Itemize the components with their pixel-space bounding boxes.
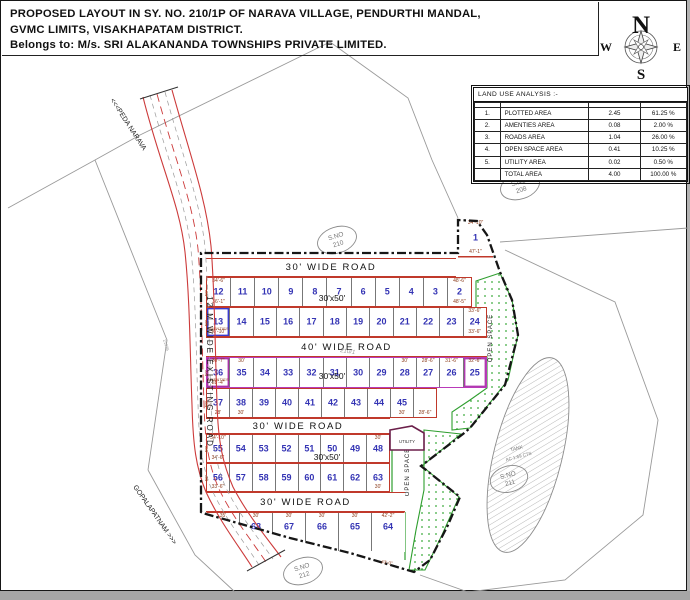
plot-cell: 22 <box>416 308 439 336</box>
plot-cell: 5 <box>375 278 399 306</box>
plot-number: 4 <box>400 287 423 297</box>
plot-number: 12 <box>207 287 230 297</box>
plot-number: 8 <box>303 287 326 297</box>
table-row: 5. UTILITY AREA 0.02 0.50 % <box>475 156 687 168</box>
title-block: PROPOSED LAYOUT IN SY. NO. 210/1P OF NAR… <box>2 2 599 56</box>
plot-cell: 48'-6" 2 48'-5" <box>447 278 471 306</box>
plot-number: 38 <box>230 398 252 408</box>
plot-number: 16 <box>277 317 299 327</box>
plot-number: 37 <box>207 398 229 408</box>
plot-cell: 34'-6" 12 36'-1" 50' <box>207 278 230 306</box>
plot-number: 57 <box>230 472 252 482</box>
plot-cell: 4 <box>399 278 423 306</box>
plot-cell: 30' 66 <box>305 513 338 551</box>
plot-cell: 44 <box>367 389 390 417</box>
table-row: 1. PLOTTED AREA 2.45 61.25 % <box>475 108 687 120</box>
plot-number: 13 <box>207 317 229 327</box>
plot-number: 42 <box>322 398 344 408</box>
plot-cell-1: 34'-10" 1 47'-1" <box>458 220 493 257</box>
plot-row-a2: 13 AMENTIES 36'-10" 50' 14 15 16 17 <box>206 307 487 337</box>
plot-number: 48 <box>367 443 389 453</box>
plot-number: 24 <box>464 317 486 327</box>
plot-cell: 30' 28 <box>393 358 416 387</box>
plot-cell: 30' 65 <box>338 513 371 551</box>
plot-number: 55 <box>207 443 229 453</box>
plot-cell: 59 <box>275 464 298 491</box>
plot-cell: 61 <box>320 464 343 491</box>
table-row: 2. AMENTIES AREA 0.08 2.00 % <box>475 120 687 132</box>
plot-row-d: 35' 69 30' 68 30' 67 30' 66 30' 65 42'-2… <box>206 512 405 552</box>
plot-number: 49 <box>344 443 366 453</box>
plot-cell: 30 <box>346 358 369 387</box>
plot-cell: 9 <box>278 278 302 306</box>
plot-cell: 63 30' <box>366 464 389 491</box>
plot-number: 34 <box>254 367 276 377</box>
plot-cell: 32'-6" 25 <box>463 358 486 387</box>
plot-cell: 32 <box>299 358 322 387</box>
plot-row-c1: 34'-10" 55 34'-6" 50' 54 53 52 51 50 <box>206 434 390 463</box>
plot-cell: 50 <box>320 435 343 462</box>
plot-cell: 35' 69 <box>207 513 239 551</box>
plot-cell: 60 <box>298 464 321 491</box>
plot-cell: 18 <box>323 308 346 336</box>
plot-cell: 34'-10" 55 34'-6" 50' <box>207 435 229 462</box>
land-use-table: LAND USE ANALYSIS :- 1. PLOTTED AREA 2.4… <box>473 87 688 182</box>
plot-number: 54 <box>230 443 252 453</box>
plot-number: 45 <box>391 398 413 408</box>
plot-number: 29 <box>370 367 392 377</box>
window-edge <box>0 591 690 600</box>
plot-number: 10 <box>255 287 278 297</box>
plot-number: 68 <box>240 522 272 532</box>
plot-cell: 54 <box>229 435 252 462</box>
plot-number: 43 <box>345 398 367 408</box>
plot-cell: 21 <box>393 308 416 336</box>
plot-number: 51 <box>299 443 321 453</box>
plot-cell: 31'-6" 26 <box>439 358 462 387</box>
plot-cell: 3 <box>423 278 447 306</box>
plot-number: 31 <box>324 367 346 377</box>
land-use-table-body: 1. PLOTTED AREA 2.45 61.25 % 2. AMENTIES… <box>475 108 687 181</box>
plot-number: 14 <box>230 317 252 327</box>
plot-number: 56 <box>207 472 229 482</box>
title-line-3: Belongs to: M/s. SRI ALAKANANDA TOWNSHIP… <box>10 38 590 54</box>
plot-cell: 7 <box>326 278 350 306</box>
plot-cell: 34 <box>253 358 276 387</box>
table-row: TOTAL AREA 4.00 100.00 % <box>475 168 687 180</box>
plot-cell: 30' 68 <box>239 513 272 551</box>
plot-cell: 45 30' <box>390 389 413 417</box>
plot-cell: 19 <box>346 308 369 336</box>
plot-cell: 53 <box>252 435 275 462</box>
plot-number: 23 <box>440 317 462 327</box>
plot-cell: 41 <box>298 389 321 417</box>
plot-number: 25 <box>464 367 486 377</box>
plot-cell: 11 <box>230 278 254 306</box>
plot-number: 20 <box>370 317 392 327</box>
plot-cell: 52 <box>275 435 298 462</box>
plot-row-c2: 56 33'-6" 50' 57 58 59 60 61 <box>206 463 390 492</box>
plot-number: 65 <box>339 522 371 532</box>
plot-number: 63 <box>367 472 389 482</box>
road-band-2: 40' WIDE ROAD <box>206 337 487 357</box>
plot-cell: 30' 67 <box>272 513 305 551</box>
plot-cell: 8 <box>302 278 326 306</box>
plot-cell: 42 <box>321 389 344 417</box>
plot-number: 64 <box>372 522 404 532</box>
plot-number: 41 <box>299 398 321 408</box>
plot-number: 61 <box>321 472 343 482</box>
plot-number: 19 <box>347 317 369 327</box>
plot-number: 39 <box>253 398 275 408</box>
plot-number: 32 <box>300 367 322 377</box>
road-band-4: 30' WIDE ROAD <box>206 492 405 512</box>
plot-cell: 23 <box>439 308 462 336</box>
plot-number: 27 <box>417 367 439 377</box>
layout-drawing-page: OPEN SPACE OPEN SPACE TANK AC 1.69 CTS S… <box>0 0 690 600</box>
plot-number: 18 <box>324 317 346 327</box>
plot-cell: 58 <box>252 464 275 491</box>
road-label: 30' WIDE ROAD <box>260 497 351 508</box>
plot-cell: 33'-6" 24 33'-6" <box>463 308 486 336</box>
plot-number: 2 <box>448 287 471 297</box>
plot-number: 21 <box>394 317 416 327</box>
plot-number: 35 <box>230 367 252 377</box>
plot-number: 6 <box>352 287 375 297</box>
plot-cell: 37 28' 50' <box>207 389 229 417</box>
plot-cell: 31 <box>323 358 346 387</box>
plot-cell: 33 <box>276 358 299 387</box>
plot-cell: 39 <box>252 389 275 417</box>
plot-cell: 57 <box>229 464 252 491</box>
plot-number: 28 <box>394 367 416 377</box>
title-line-2: GVMC LIMITS, VISAKHAPATAM DISTRICT. <box>10 23 590 39</box>
plot-cell: 15 <box>253 308 276 336</box>
plot-cell: 42'-2" 64 <box>371 513 404 551</box>
plot-number: 36 <box>207 367 229 377</box>
road-label: 30' WIDE ROAD <box>253 421 344 432</box>
plot-number: 22 <box>417 317 439 327</box>
plot-number: 7 <box>327 287 350 297</box>
plot-number: 62 <box>344 472 366 482</box>
plot-row-b1: 30'-7" 36 AMENTIES 28'-4" 50' 30' 35 34 … <box>206 357 487 388</box>
plot-cell: 43 <box>344 389 367 417</box>
plot-cell: 28'-6" <box>413 389 436 417</box>
plot-number: 3 <box>424 287 447 297</box>
plot-cell: 49 <box>343 435 366 462</box>
plot-cell: 40 <box>275 389 298 417</box>
plot-cell: 56 33'-6" 50' <box>207 464 229 491</box>
plot-cell: 30' 48 <box>366 435 389 462</box>
plot-cell: 30'-7" 36 AMENTIES 28'-4" 50' <box>207 358 229 387</box>
plot-number: 66 <box>306 522 338 532</box>
plot-cell: 38 30' <box>229 389 252 417</box>
plot-cell: 17 <box>299 308 322 336</box>
plot-cell: 30' 35 <box>229 358 252 387</box>
plot-number: 30 <box>347 367 369 377</box>
plot-cell: 10 <box>254 278 278 306</box>
road-label: 40' WIDE ROAD <box>301 342 392 353</box>
plot-number: 69 <box>207 522 239 532</box>
table-row: 3. ROADS AREA 1.04 26.00 % <box>475 132 687 144</box>
plot-number: 5 <box>376 287 399 297</box>
plot-number: 15 <box>254 317 276 327</box>
plot-cell: 20 <box>369 308 392 336</box>
road-label: 30' WIDE ROAD <box>286 262 377 273</box>
road-band-3: 30' WIDE ROAD <box>206 418 390 434</box>
plot-number: 53 <box>253 443 275 453</box>
title-line-1: PROPOSED LAYOUT IN SY. NO. 210/1P OF NAR… <box>10 7 590 23</box>
plot-number: 59 <box>276 472 298 482</box>
plot-cell: 62 <box>343 464 366 491</box>
plot-number: 40 <box>276 398 298 408</box>
plot-cell: 14 <box>229 308 252 336</box>
plot-number: 58 <box>253 472 275 482</box>
plot-number: 60 <box>299 472 321 482</box>
plot-number: 67 <box>273 522 305 532</box>
plot-number: 9 <box>279 287 302 297</box>
plot-number: 26 <box>440 367 462 377</box>
land-use-table-title: LAND USE ANALYSIS :- <box>474 88 687 102</box>
plot-cell: 13 AMENTIES 36'-10" 50' <box>207 308 229 336</box>
plot-number: 52 <box>276 443 298 453</box>
road-band-1: 30' WIDE ROAD <box>206 258 456 277</box>
plot-number: 33 <box>277 367 299 377</box>
plot-row-a1: 34'-6" 12 36'-1" 50' 11 10 9 8 <box>206 277 472 307</box>
plot-cell: 51 <box>298 435 321 462</box>
plot-number: 1 <box>458 233 493 243</box>
plot-cell: 28'-6" 27 <box>416 358 439 387</box>
plot-row-b2: 37 28' 50' 38 30' 39 40 41 42 <box>206 388 437 418</box>
plot-number: 11 <box>231 287 254 297</box>
plot-number: 17 <box>300 317 322 327</box>
plot-cell: 29 <box>369 358 392 387</box>
plot-cell: 6 <box>351 278 375 306</box>
plot-number: 50 <box>321 443 343 453</box>
plot-number: 44 <box>368 398 390 408</box>
table-row: 4. OPEN SPACE AREA 0.41 10.25 % <box>475 144 687 156</box>
plot-cell: 16 <box>276 308 299 336</box>
